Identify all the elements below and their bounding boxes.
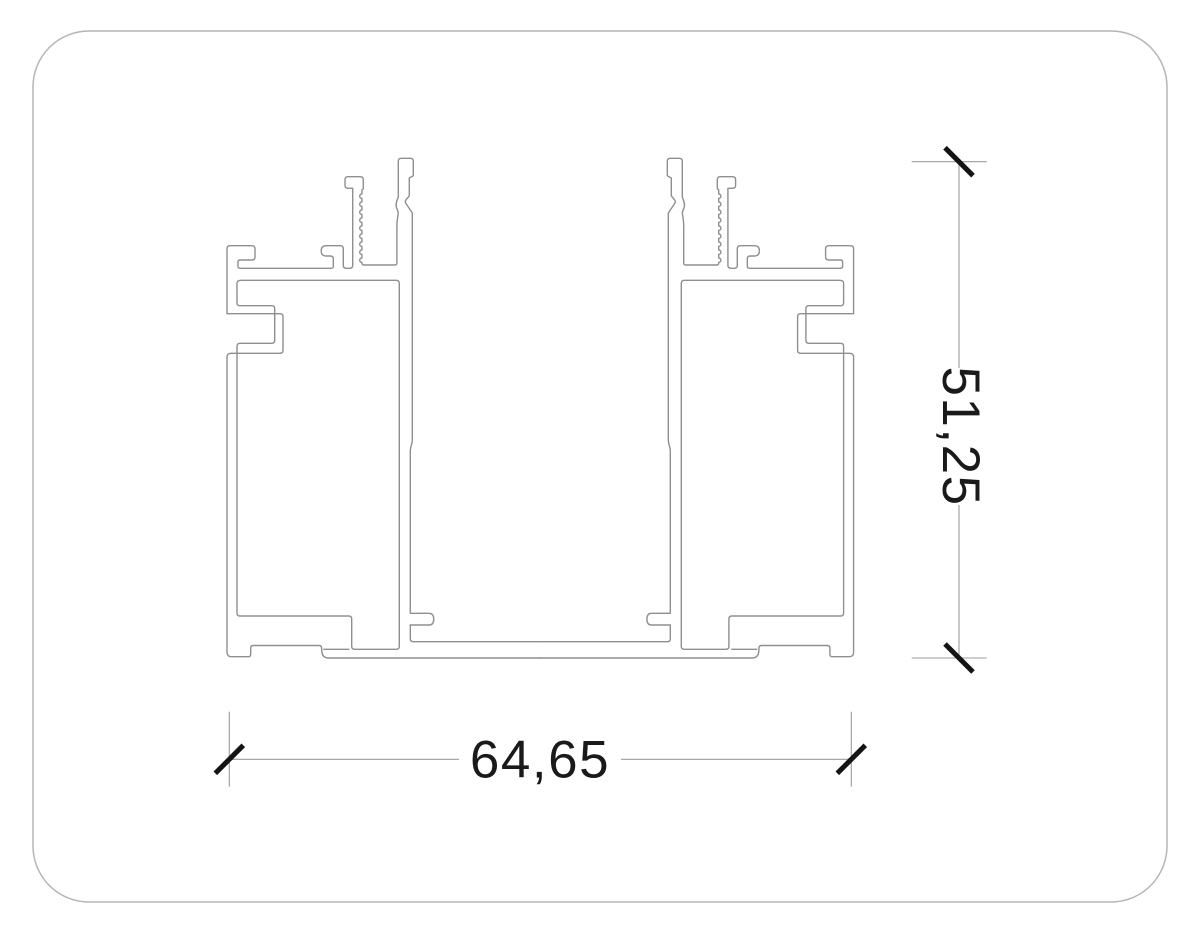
- height-dimension: 51,25: [912, 148, 990, 672]
- width-dimension: 64,65: [215, 712, 865, 790]
- technical-drawing-page: 51,25 64,65: [0, 0, 1200, 933]
- width-dimension-label: 64,65: [470, 731, 610, 790]
- technical-drawing-canvas: 51,25 64,65: [0, 0, 1200, 933]
- profile-right-half: [540, 158, 853, 658]
- profile-left-half: [227, 158, 540, 658]
- height-dimension-label: 51,25: [931, 366, 990, 506]
